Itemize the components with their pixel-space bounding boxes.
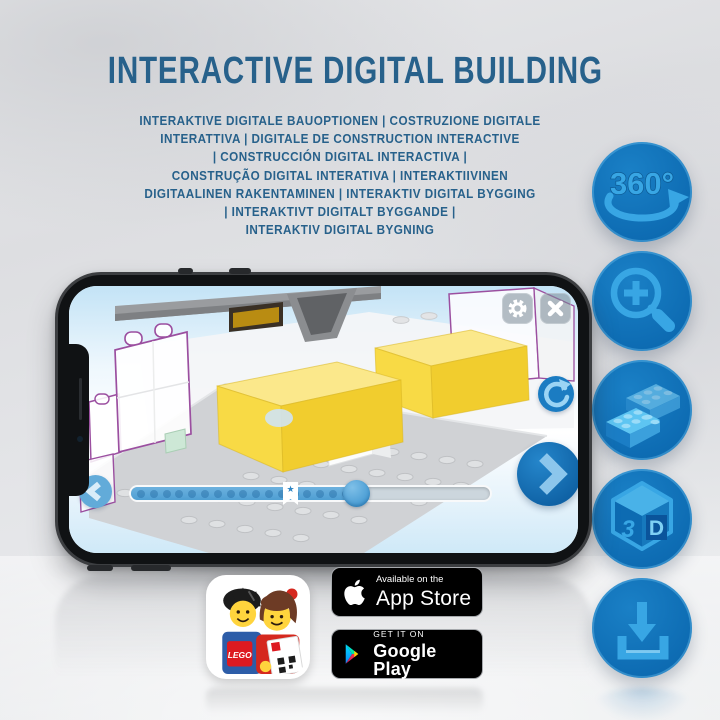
app-store-name: App Store	[376, 588, 471, 609]
rotate-icon	[538, 376, 574, 412]
progress-dot	[175, 490, 183, 498]
subtitle-line: | INTERAKTIVT DIGITALT BYGGANDE |	[66, 203, 615, 221]
app-store-badge[interactable]: Available on the App Store	[331, 567, 483, 617]
feature-zoom-badge	[592, 251, 692, 351]
lego-minifigures-art: LEGO	[211, 580, 305, 674]
speaker-slit	[79, 378, 82, 420]
download-icon	[592, 578, 692, 678]
svg-text:3: 3	[621, 516, 635, 543]
progress-dot	[137, 490, 145, 498]
progress-slider-knob[interactable]	[343, 480, 370, 507]
bookmark-marker[interactable]: ★	[283, 482, 298, 505]
silent-switch	[87, 565, 113, 571]
star-icon: ★	[286, 484, 294, 494]
multilingual-subtitle: INTERAKTIVE DIGITALE BAUOPTIONEN | COSTR…	[35, 112, 645, 239]
feature-download-badge	[592, 578, 692, 678]
google-play-icon	[342, 641, 364, 667]
subtitle-line: INTERATTIVA | DIGITALE DE CONSTRUCTION I…	[66, 130, 615, 148]
svg-text:360°: 360°	[610, 166, 674, 201]
progress-dot	[329, 490, 337, 498]
store-reflection	[206, 688, 483, 714]
progress-dot	[227, 490, 235, 498]
progress-dot	[163, 490, 171, 498]
close-icon	[540, 293, 571, 324]
marketing-banner: INTERACTIVE DIGITAL BUILDING INTERAKTIVE…	[0, 0, 720, 720]
feature-360-badge: 360°	[592, 142, 692, 242]
subtitle-line: | CONSTRUCCIÓN DIGITAL INTERACTIVA |	[66, 148, 615, 166]
google-play-name: Google Play	[373, 642, 472, 678]
gear-icon	[502, 293, 533, 324]
phone-screen: ★	[69, 286, 578, 553]
next-step-button[interactable]	[517, 442, 578, 506]
front-camera	[77, 436, 83, 442]
progress-dot	[239, 490, 247, 498]
progress-dot	[252, 490, 260, 498]
subtitle-line: INTERAKTIV DIGITAL BYGNING	[66, 221, 615, 239]
google-play-tagline: GET IT ON	[373, 630, 472, 639]
lego-app-icon[interactable]: LEGO	[206, 575, 310, 679]
feature-brick-badge	[592, 360, 692, 460]
progress-dot	[201, 490, 209, 498]
close-button[interactable]	[540, 293, 571, 324]
google-play-badge[interactable]: GET IT ON Google Play	[331, 629, 483, 679]
app-store-tagline: Available on the	[376, 575, 471, 585]
subtitle-line: DIGITAALINEN RAKENTAMINEN | INTERAKTIV D…	[66, 185, 615, 203]
zoom-in-icon	[592, 251, 692, 351]
rotate-360-icon: 360°	[592, 142, 692, 242]
settings-button[interactable]	[502, 293, 533, 324]
subtitle-line: INTERAKTIVE DIGITALE BAUOPTIONEN | COSTR…	[66, 112, 615, 130]
page-title: INTERACTIVE DIGITAL BUILDING	[0, 50, 710, 93]
side-button	[229, 268, 251, 274]
phone: ★	[55, 272, 592, 567]
phone-reflection	[55, 576, 592, 706]
reset-rotation-button[interactable]	[538, 376, 574, 412]
lego-brick-icon	[592, 360, 692, 460]
lego-3d-scene	[69, 286, 578, 553]
svg-text:D: D	[649, 517, 664, 540]
progress-dot	[188, 490, 196, 498]
apple-icon	[342, 578, 367, 607]
build-progress-bar[interactable]: ★	[129, 485, 492, 502]
feature-reflection	[592, 688, 692, 720]
progress-dot	[316, 490, 324, 498]
svg-text:LEGO: LEGO	[228, 650, 252, 660]
progress-dot	[265, 490, 273, 498]
progress-dot	[303, 490, 311, 498]
chevron-right-icon	[517, 442, 578, 506]
volume-button	[131, 565, 171, 571]
progress-dot	[214, 490, 222, 498]
subtitle-line: CONSTRUÇÃO DIGITAL INTERATIVA | INTERAKT…	[66, 167, 615, 185]
progress-fill	[131, 487, 354, 500]
power-button	[178, 268, 193, 274]
progress-dot	[150, 490, 158, 498]
phone-notch	[69, 344, 89, 496]
